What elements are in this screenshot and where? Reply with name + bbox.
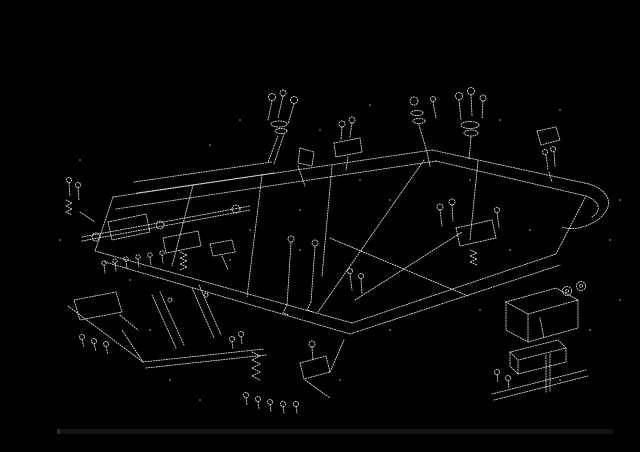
- diagram-part: [495, 208, 500, 213]
- diagram-part: [134, 162, 272, 182]
- diagram-part: [497, 213, 499, 227]
- speck: [339, 379, 341, 381]
- diagram-part: [413, 119, 425, 124]
- diagram-part: [556, 196, 586, 254]
- diagram-part: [104, 342, 109, 347]
- diagram-part: [247, 175, 262, 297]
- diagram-part: [528, 300, 578, 342]
- diagram-part: [312, 347, 313, 360]
- diagram-part: [204, 293, 208, 297]
- diagram-part: [146, 355, 266, 368]
- diagram-part: [136, 255, 140, 259]
- speck: [149, 329, 151, 331]
- diagram-part: [66, 200, 72, 215]
- diagram-canvas: [0, 0, 640, 452]
- diagram-part: [419, 125, 430, 166]
- diagram-part: [577, 282, 586, 291]
- diagram-part: [122, 330, 143, 362]
- speck: [199, 399, 201, 401]
- diagram-part: [152, 295, 176, 348]
- speck: [229, 259, 231, 261]
- diagram-part: [350, 274, 362, 294]
- diagram-part: [410, 97, 418, 105]
- diagram-part: [464, 130, 478, 136]
- exploded-parts-diagram: [0, 0, 640, 452]
- diagram-part: [239, 332, 244, 337]
- diagram-part: [330, 238, 468, 296]
- speck: [619, 199, 621, 201]
- diagram-part: [586, 196, 598, 217]
- diagram-part: [352, 254, 556, 323]
- diagram-part: [468, 88, 475, 95]
- diagram-part: [82, 340, 108, 354]
- diagram-part: [518, 348, 566, 374]
- speck: [479, 309, 481, 311]
- diagram-part: [92, 339, 97, 344]
- speck: [559, 109, 561, 111]
- speck: [369, 104, 371, 106]
- speck: [79, 159, 81, 161]
- diagram-part: [113, 259, 117, 263]
- speck: [359, 179, 361, 181]
- diagram-part: [67, 178, 72, 183]
- diagram-part: [311, 247, 315, 302]
- diagram-part: [318, 160, 424, 312]
- diagram-part: [566, 290, 569, 293]
- diagram-part: [551, 147, 556, 152]
- diagram-part: [268, 400, 273, 405]
- diagram-part: [269, 94, 276, 101]
- diagram-part: [492, 370, 588, 400]
- diagram-part: [359, 274, 364, 279]
- diagram-part: [76, 183, 81, 188]
- diagram-part: [543, 150, 548, 155]
- speck: [389, 329, 391, 331]
- diagram-part: [322, 166, 332, 276]
- diagram-part: [309, 341, 315, 347]
- diagram-part: [148, 253, 152, 257]
- diagram-part: [120, 315, 138, 330]
- speck: [129, 279, 131, 281]
- speck: [249, 229, 251, 231]
- diagram-part: [116, 161, 436, 209]
- diagram-part: [510, 340, 566, 360]
- diagram-part: [230, 337, 235, 342]
- speck: [209, 144, 211, 146]
- diagram-part: [459, 95, 483, 120]
- diagram-part: [440, 205, 453, 226]
- diagram-part: [350, 265, 560, 334]
- diagram-part: [305, 340, 344, 398]
- diagram-part: [339, 121, 345, 127]
- diagram-part: [349, 117, 355, 123]
- speck: [499, 119, 501, 121]
- diagram-part: [172, 185, 193, 266]
- diagram-part: [437, 204, 443, 210]
- diagram-part: [95, 251, 352, 323]
- diagram-part: [160, 251, 164, 255]
- speck: [619, 299, 621, 301]
- diagram-part: [244, 393, 249, 398]
- diagram-part: [180, 252, 187, 270]
- diagram-part: [294, 402, 299, 407]
- diagram-part: [210, 240, 235, 256]
- speck: [239, 119, 241, 121]
- diagram-part: [546, 152, 555, 182]
- diagram-part: [461, 122, 479, 129]
- diagram-part: [497, 375, 509, 388]
- diagram-part: [312, 240, 318, 246]
- diagram-part: [411, 111, 423, 116]
- diagram-part: [108, 214, 150, 240]
- diagram-part: [280, 90, 286, 96]
- diagram-part: [137, 173, 274, 193]
- diagram-part: [300, 356, 330, 379]
- diagram-part: [346, 157, 348, 170]
- speck: [319, 129, 321, 131]
- diagram-part: [506, 288, 578, 314]
- diagram-part: [95, 197, 113, 251]
- diagram-part: [271, 121, 287, 127]
- diagram-part: [495, 370, 500, 375]
- diagram-part: [68, 306, 143, 362]
- diagram-part: [469, 137, 471, 160]
- diagram-part: [432, 150, 589, 184]
- diagram-part: [275, 129, 287, 134]
- diagram-part: [540, 318, 544, 338]
- diagram-part: [506, 376, 511, 381]
- diagram-part: [268, 134, 284, 164]
- diagram-part: [298, 148, 314, 166]
- speck: [469, 179, 471, 181]
- speck: [529, 229, 531, 231]
- diagram-part: [222, 256, 228, 270]
- speck: [59, 239, 61, 241]
- speck: [299, 249, 301, 251]
- diagram-part: [510, 352, 518, 374]
- speck: [509, 249, 511, 251]
- diagram-part: [80, 212, 95, 222]
- diagram-part: [291, 97, 298, 104]
- diagram-part: [287, 243, 291, 305]
- diagram-part: [124, 257, 128, 261]
- diagram-part: [143, 349, 264, 362]
- diagram-part: [537, 127, 560, 145]
- diagram-part: [470, 250, 477, 265]
- speck: [559, 379, 561, 381]
- diagram-part: [449, 199, 455, 205]
- diagram-part: [163, 231, 201, 253]
- diagram-part: [232, 337, 242, 349]
- speck: [169, 379, 171, 381]
- diagram-part: [456, 93, 463, 100]
- speck: [589, 329, 591, 331]
- diagram-part: [580, 285, 583, 288]
- diagram-part: [256, 397, 261, 402]
- diagram-part: [355, 232, 462, 300]
- diagram-part: [102, 261, 106, 265]
- speck: [609, 239, 611, 241]
- diagram-part: [281, 402, 286, 407]
- speck: [419, 299, 421, 301]
- diagram-part: [470, 161, 478, 240]
- diagram-part: [192, 288, 214, 338]
- diagram-part: [82, 206, 250, 237]
- diagram-part: [436, 161, 586, 196]
- diagram-part: [69, 183, 79, 200]
- diagram-part: [456, 220, 496, 246]
- diagram-part: [168, 298, 172, 302]
- diagram-part: [431, 97, 436, 102]
- diagram-part: [80, 335, 85, 340]
- diagram-part: [480, 95, 486, 101]
- diagram-part: [433, 102, 436, 118]
- diagram-part: [562, 184, 609, 229]
- diagram-part: [563, 287, 572, 296]
- diagram-part: [341, 123, 352, 140]
- diagram-part: [334, 138, 362, 157]
- diagram-part: [288, 236, 294, 242]
- speck: [389, 199, 391, 201]
- speck: [299, 209, 301, 211]
